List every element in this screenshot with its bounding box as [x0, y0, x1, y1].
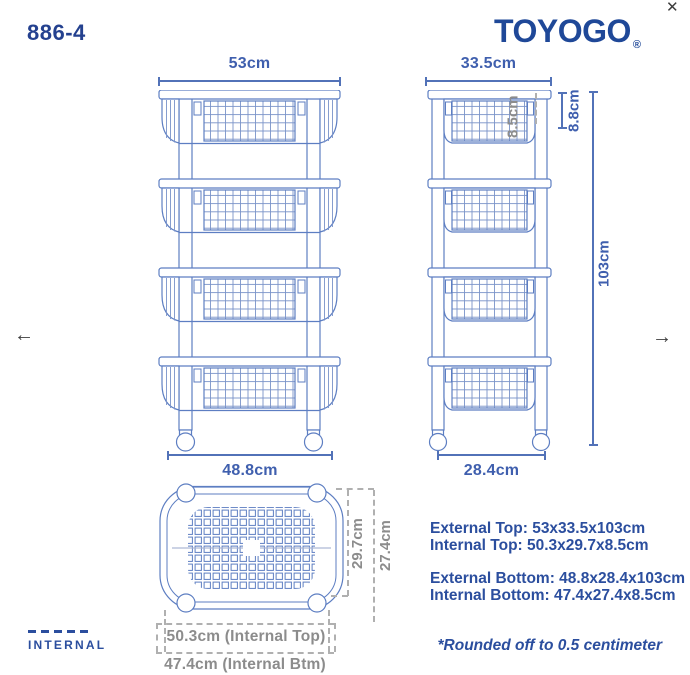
basket-height-dimension-line	[561, 92, 563, 129]
side-right-caster	[533, 434, 550, 451]
prev-arrow-icon[interactable]: ←	[14, 325, 34, 345]
overall-height-label: 103cm	[595, 232, 613, 296]
front-right-caster	[305, 433, 323, 451]
front-right-post	[307, 96, 320, 430]
front-bottom-width-dimension-line	[167, 454, 333, 456]
side-right-post	[535, 96, 547, 430]
internal-width-projection	[156, 623, 334, 625]
brand-name: TOYOGO	[494, 13, 631, 49]
external-bottom-spec: External Bottom: 48.8x28.4x103cm	[430, 571, 685, 588]
internal-bottom-spec: Internal Bottom: 47.4x27.4x8.5cm	[430, 588, 685, 605]
internal-width-projection	[156, 623, 158, 652]
next-arrow-icon[interactable]: →	[652, 327, 672, 347]
side-top-depth-label: 33.5cm	[425, 55, 552, 73]
specs-bottom-group: External Bottom: 48.8x28.4x103cm Interna…	[430, 571, 685, 604]
front-top-width-dimension-line	[158, 80, 341, 82]
internal-height-dashed-line	[535, 93, 537, 124]
side-view-drawing	[427, 90, 552, 452]
top-view-corner-post	[177, 484, 195, 502]
front-left-post	[179, 96, 192, 430]
internal-height-label: 8.5cm	[504, 92, 522, 142]
side-bottom-depth-dimension-line	[437, 454, 546, 456]
overall-height-dimension-line	[592, 91, 594, 446]
front-view-drawing	[158, 90, 341, 452]
model-number: 886-4	[27, 20, 86, 46]
close-icon[interactable]: ✕	[664, 0, 681, 18]
internal-width-projection	[334, 623, 336, 652]
top-view-corner-post	[177, 594, 195, 612]
internal-width-projection	[156, 652, 334, 654]
front-bottom-width-label: 48.8cm	[167, 462, 333, 480]
top-view-corner-post	[308, 484, 326, 502]
internal-bottom-depth-line	[373, 490, 375, 622]
internal-top-spec: Internal Top: 50.3x29.7x8.5cm	[430, 538, 649, 555]
side-left-caster	[430, 434, 447, 451]
internal-width-projection	[328, 610, 330, 652]
side-top-depth-dimension-line	[425, 80, 552, 82]
internal-projection-line	[336, 488, 374, 490]
internal-legend-label: INTERNAL	[28, 638, 106, 652]
basket-height-label: 8.8cm	[565, 86, 583, 136]
brand-logo: TOYOGO®	[494, 13, 640, 51]
registered-trademark-icon: ®	[633, 39, 641, 51]
internal-legend-dash	[28, 630, 90, 633]
product-dimension-diagram: 886-4 TOYOGO® ✕ ← → 53cm	[0, 0, 690, 675]
front-top-width-label: 53cm	[158, 55, 341, 73]
specs-top-group: External Top: 53x33.5x103cm Internal Top…	[430, 521, 649, 554]
side-left-post	[432, 96, 444, 430]
side-bottom-depth-label: 28.4cm	[437, 462, 546, 480]
internal-bottom-depth-label: 27.4cm	[377, 510, 394, 582]
external-top-spec: External Top: 53x33.5x103cm	[430, 521, 649, 538]
internal-top-depth-label: 29.7cm	[349, 508, 366, 580]
rounding-note: *Rounded off to 0.5 centimeter	[438, 637, 663, 655]
top-view-corner-post	[308, 594, 326, 612]
internal-bottom-width-label: 47.4cm (Internal Btm)	[156, 656, 334, 674]
internal-top-width-label: 50.3cm (Internal Top)	[164, 628, 328, 646]
internal-projection-line	[331, 595, 348, 597]
front-left-caster	[177, 433, 195, 451]
top-view-drawing	[158, 482, 345, 614]
